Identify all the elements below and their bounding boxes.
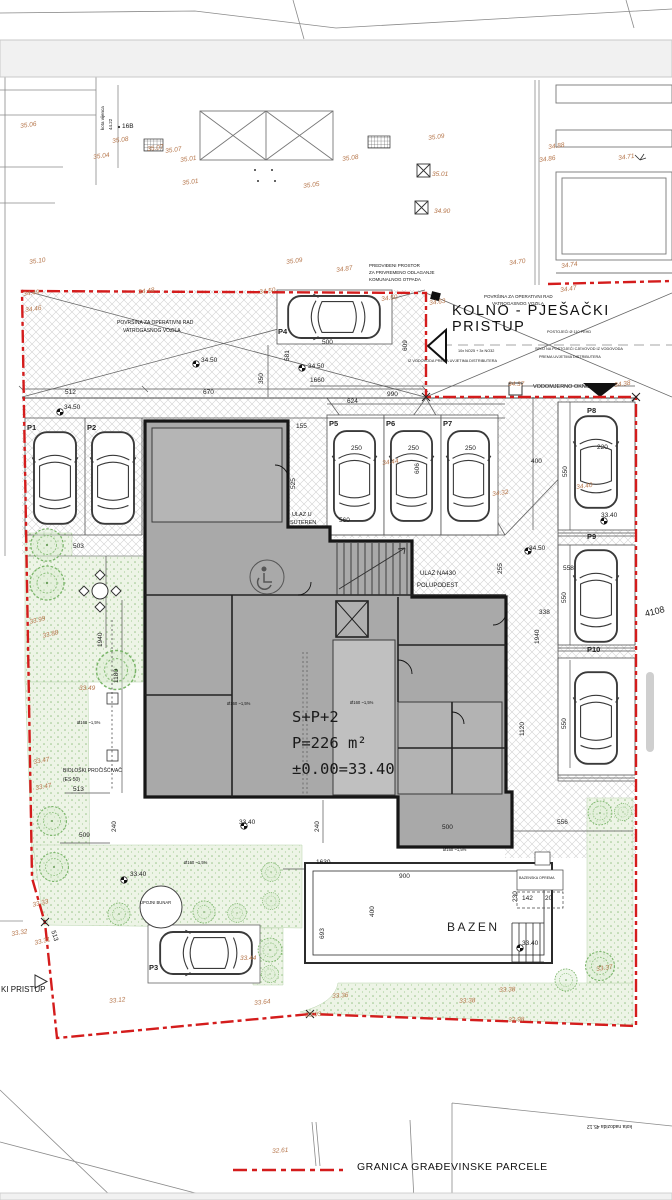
soakaway-well	[140, 886, 182, 928]
car-icon	[446, 431, 490, 521]
waste-container-icon	[430, 291, 441, 301]
car-icon	[90, 432, 135, 524]
tree-icon	[30, 566, 64, 600]
benchmark-icon	[121, 877, 127, 883]
tree-icon	[31, 529, 63, 561]
misc-marks	[118, 126, 646, 214]
benchmark-icon	[299, 365, 305, 371]
tree-icon	[588, 801, 612, 825]
benchmark-icon	[193, 361, 199, 367]
tree-icon	[40, 853, 69, 882]
car-icon	[573, 550, 618, 642]
water-meter-icon	[583, 383, 618, 397]
bottom-band	[0, 1193, 672, 1200]
tree-icon	[262, 966, 279, 983]
car-icon	[160, 930, 252, 975]
shaft-box-icon	[415, 164, 430, 214]
top-band	[0, 40, 672, 77]
car-icon	[573, 416, 618, 508]
elevator	[336, 601, 368, 637]
car-icon	[288, 294, 380, 339]
tree-icon	[228, 904, 247, 923]
benchmark-icon	[517, 945, 523, 951]
tree-icon	[615, 804, 632, 821]
grate-icon	[368, 136, 390, 148]
scrollbar[interactable]	[646, 672, 654, 752]
tree-icon	[262, 863, 281, 882]
car-icon	[389, 431, 433, 521]
access-arrow-icon	[35, 975, 47, 988]
pool-equipment-box	[517, 870, 563, 890]
benchmark-icon	[241, 823, 247, 829]
pool	[305, 852, 563, 963]
car-icon	[32, 432, 77, 524]
benchmark-icon	[601, 518, 607, 524]
benchmark-icon	[525, 548, 531, 554]
tree-icon	[555, 969, 577, 991]
tree-icon	[258, 938, 282, 962]
tree-icon	[263, 893, 280, 910]
tree-icon	[38, 807, 67, 836]
site-plan-page: KOLNO - PJEŠAČKI PRISTUP BAZEN S+P+2 P=2…	[0, 0, 672, 1200]
plant-icon	[635, 154, 646, 160]
tree-icon	[108, 903, 130, 925]
benchmark-icon	[57, 409, 63, 415]
car-icon	[332, 431, 376, 521]
tree-icon	[193, 901, 215, 923]
neighbour-buildings	[200, 85, 672, 273]
tree-icon	[96, 650, 135, 689]
hydrant-icon	[428, 330, 446, 362]
grate-icon	[144, 139, 163, 151]
tree-icon	[586, 952, 615, 981]
site-plan-drawing	[0, 0, 672, 1200]
car-icon	[573, 672, 618, 764]
